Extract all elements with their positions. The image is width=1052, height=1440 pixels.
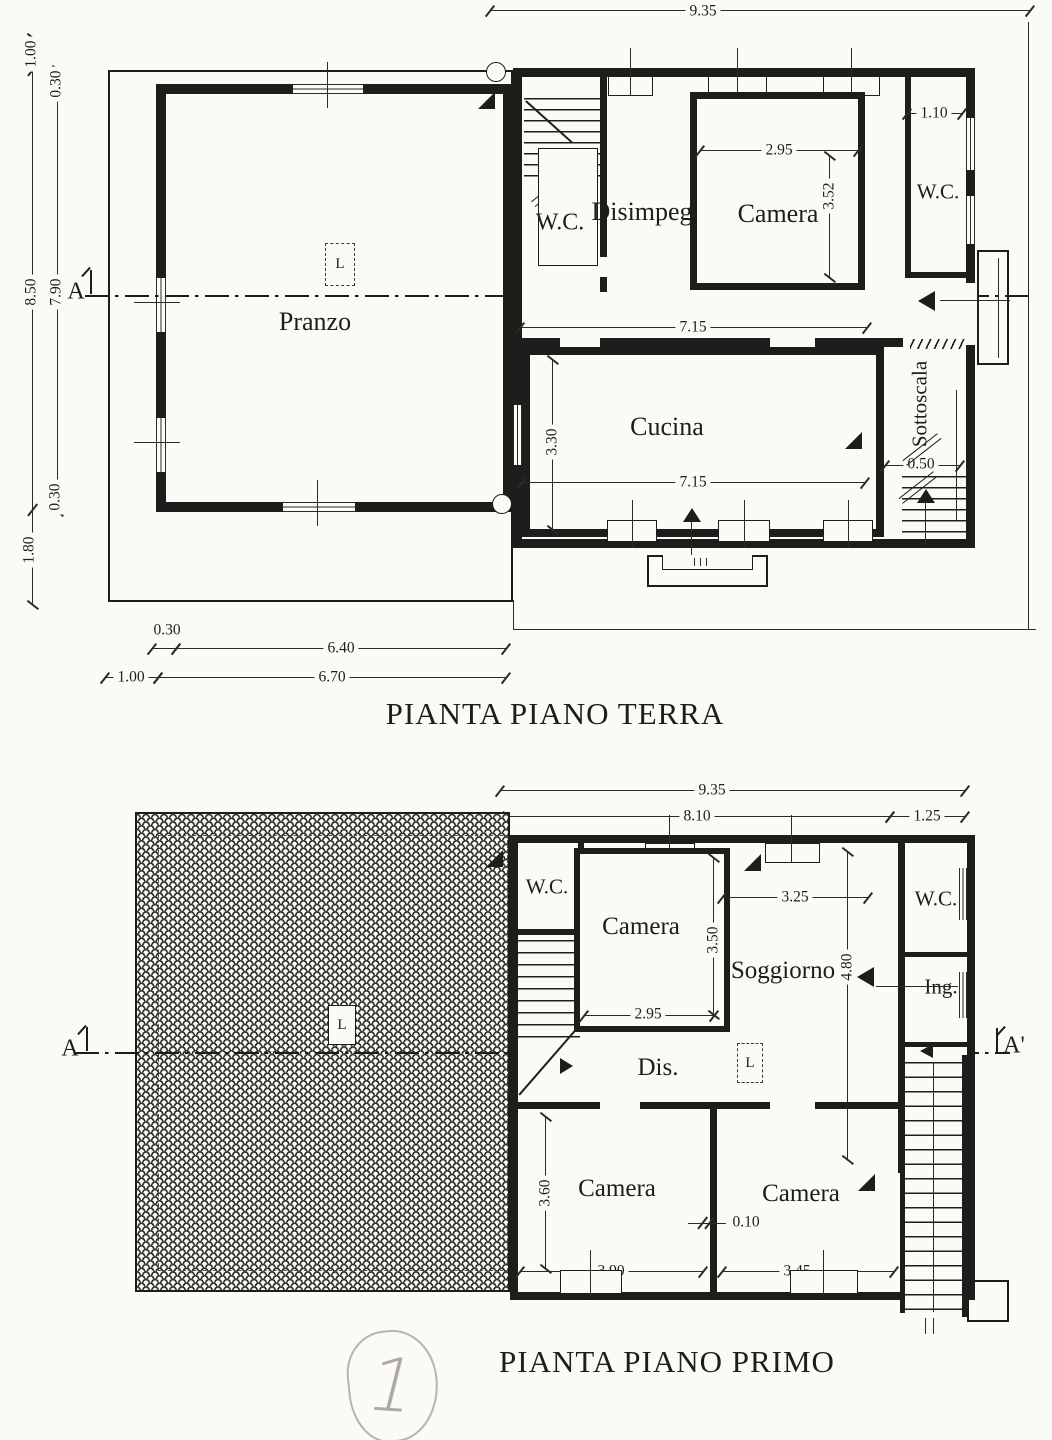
ff-room-label-wc2: W.C. (915, 887, 957, 912)
ff-dim-partition: 0.10 (728, 1213, 763, 1231)
ff-room-label-camera-top: Camera (602, 913, 680, 941)
ff-partition-cameras (710, 1102, 717, 1298)
stair-side-wall (962, 1055, 967, 1317)
step-tick (933, 1318, 934, 1334)
ff-room-label-dis: Dis. (638, 1054, 679, 1082)
section-flag (86, 1027, 88, 1051)
ff-dim-camera-bl-height: 3.60 (536, 1175, 554, 1210)
stair-center-line (933, 1062, 934, 1312)
ff-dim-top-width: 9.35 (694, 781, 729, 799)
step-tick (925, 1318, 926, 1334)
ff-dim-soggiorno-height: 4.80 (838, 949, 856, 984)
ff-section-marker-a1: A' (1003, 1033, 1025, 1060)
flue-symbol (486, 850, 503, 867)
ff-roof-lamp-symbol: L (328, 1005, 356, 1045)
ff-room-label-camera-br: Camera (762, 1180, 840, 1208)
ff-partition (518, 1102, 600, 1109)
ff-title: PIANTA PIANO PRIMO (499, 1344, 835, 1380)
ff-dim-line-soggiorno-height (847, 852, 848, 1160)
stair-landing (967, 1280, 1009, 1322)
ff-dim-stair-width: 1.25 (909, 807, 944, 825)
entrance-arrow (857, 967, 874, 987)
flue-symbol (744, 854, 761, 871)
scanned-floor-plan-sheet: 9.35 1.00 8.50 1.80 0.30 7.90 0.30 L Pra… (0, 0, 1052, 1440)
ff-hall-lamp-label: L (745, 1055, 754, 1072)
ff-dim-body-width: 8.10 (679, 807, 714, 825)
window-axis (590, 1250, 591, 1298)
entrance-arrow-stem (876, 986, 958, 987)
window-recess (765, 843, 820, 863)
window-axis (791, 815, 792, 863)
window (959, 868, 967, 920)
ff-partition (905, 1042, 967, 1047)
ff-partition (815, 1102, 903, 1109)
ff-dim-camera-top-height: 3.50 (704, 922, 722, 957)
flue-symbol (858, 1174, 875, 1191)
stair-direction-arrow (560, 1058, 573, 1074)
ff-room-label-soggiorno: Soggiorno (731, 957, 835, 985)
ff-dim-soggiorno-width: 3.25 (777, 888, 812, 906)
ff-room-label-camera-bl: Camera (578, 1175, 656, 1203)
ff-roof-lamp-label: L (337, 1017, 346, 1034)
ff-stairs (518, 940, 580, 1040)
first-floor-plan: 9.35 8.10 1.25 L A A' W.C. (0, 0, 1052, 1440)
ff-section-marker-a: A (61, 1036, 78, 1063)
window-axis (823, 1250, 824, 1298)
stair-direction-arrow (920, 1044, 933, 1058)
ff-partition (640, 1102, 770, 1109)
ff-partition (905, 952, 967, 957)
window (959, 972, 967, 1018)
ff-room-label-wc1: W.C. (526, 875, 568, 900)
ff-dim-camera-top-width: 2.95 (630, 1005, 665, 1023)
ff-hall-lamp-symbol: L (737, 1043, 763, 1083)
ff-dim-line-top-width (500, 790, 965, 791)
handwritten-sheet-number: 1 (359, 1342, 427, 1430)
